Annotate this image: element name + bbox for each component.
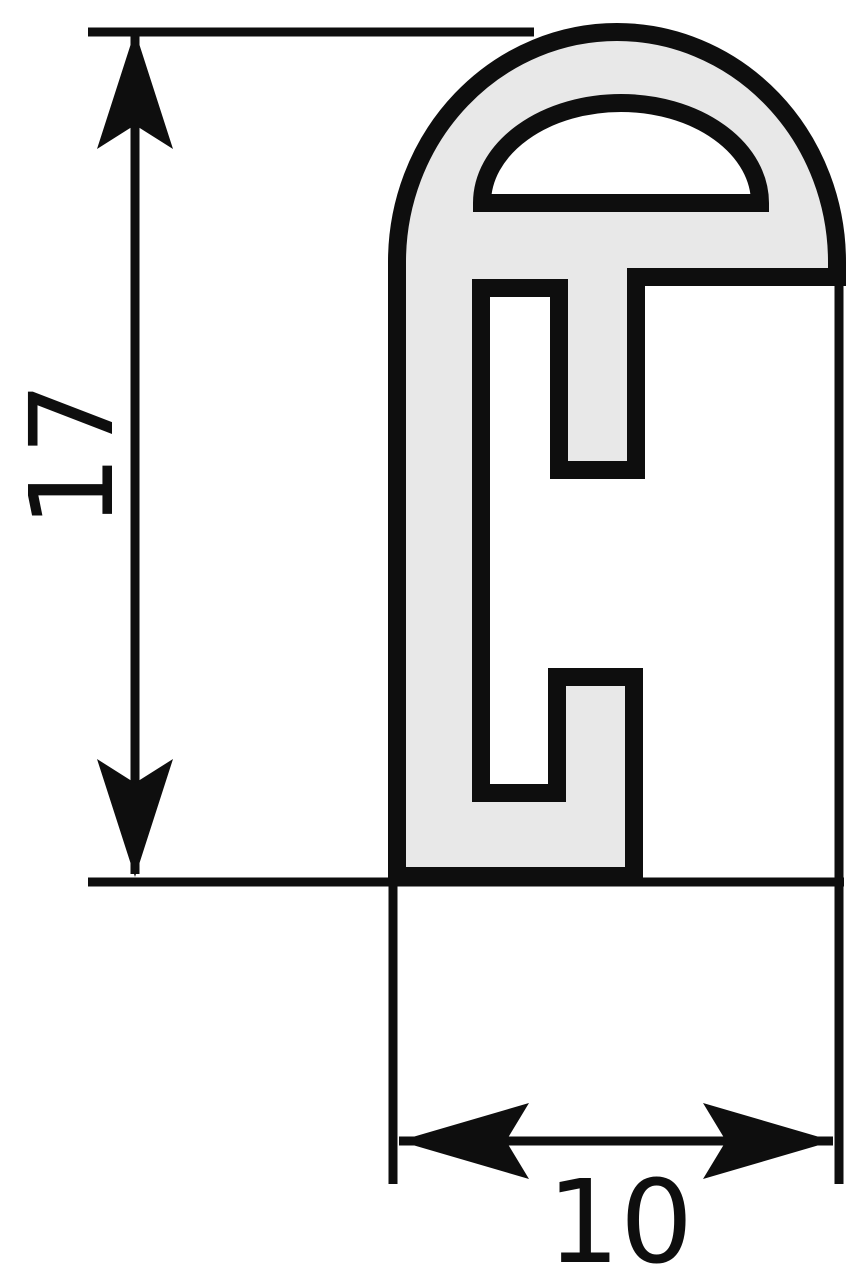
dim-width-label: 10 [547, 1156, 693, 1280]
drawing-canvas: 17 10 [0, 0, 868, 1280]
technical-drawing: 17 10 [0, 0, 868, 1280]
dim-height-label: 17 [6, 382, 140, 528]
